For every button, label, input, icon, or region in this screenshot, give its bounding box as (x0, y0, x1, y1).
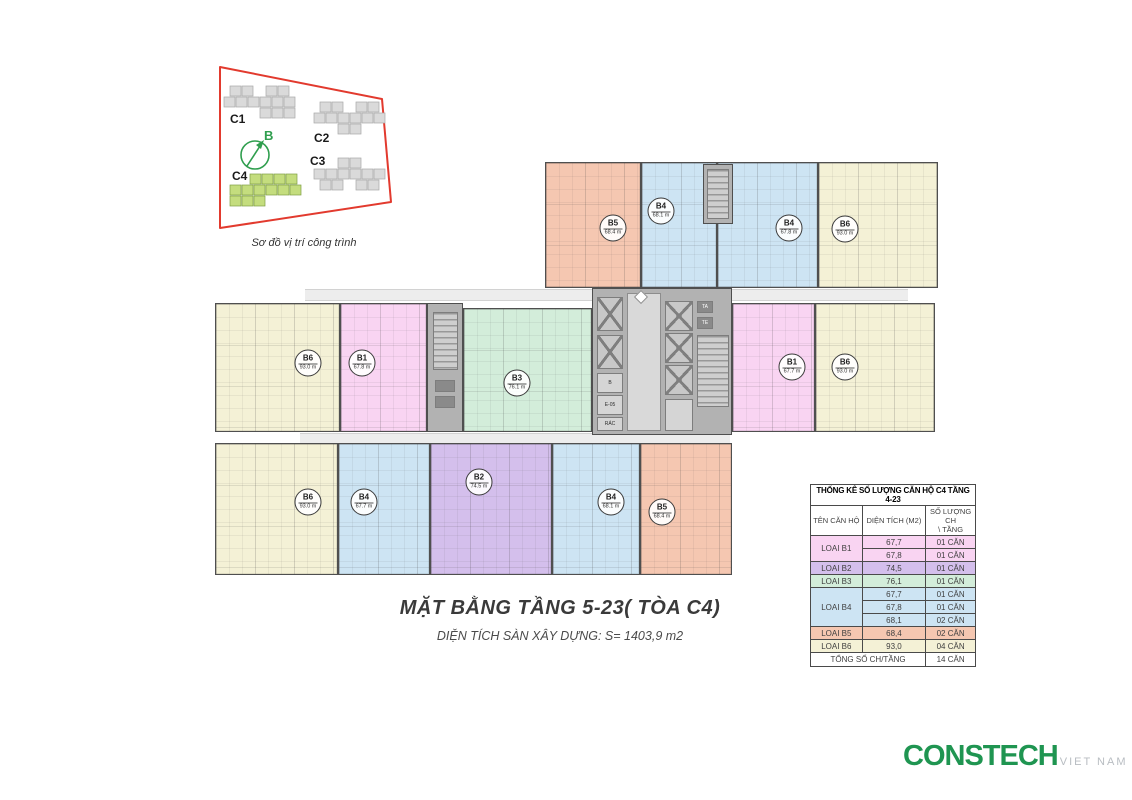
unit-code: B2 (474, 474, 484, 483)
unit-type-cell: LOAI B4 (811, 588, 863, 627)
stats-table-body: LOAI B167,701 CĂN67,801 CĂNLOAI B274,501… (811, 536, 976, 653)
stats-row: LOAI B467,701 CĂN (811, 588, 976, 601)
unit-label-b1-mid-left: B167.8 m (349, 350, 376, 377)
stats-table-title: THỐNG KÊ SỐ LƯỢNG CĂN HỘ C4 TẦNG 4-23 (811, 485, 976, 506)
apartment-stats-table: THỐNG KÊ SỐ LƯỢNG CĂN HỘ C4 TẦNG 4-23 TÊ… (810, 484, 976, 667)
stats-row: LOAI B167,701 CĂN (811, 536, 976, 549)
elevator-cell (665, 301, 693, 331)
unit-label-b6-bottom-left: B693.0 m (295, 489, 322, 516)
area-cell: 68,4 (862, 627, 926, 640)
floor-plan: B E-05 RÁC TA TE B568.4 mB468.1 mB467.8 … (0, 0, 1132, 800)
mid-wing-stairwell (427, 303, 463, 432)
service-shaft (435, 380, 455, 392)
area-cell: 68,1 (862, 614, 926, 627)
unit-label-b2-bottom: B274.5 m (466, 469, 493, 496)
unit-label-b6-mid-left: B693.0 m (295, 350, 322, 377)
area-cell: 67,7 (862, 588, 926, 601)
unit-type-cell: LOAI B3 (811, 575, 863, 588)
unit-b2-bottom (430, 443, 552, 575)
unit-label-b5-bottom: B568.4 m (649, 499, 676, 526)
count-cell: 01 CĂN (926, 562, 976, 575)
unit-label-b3-mid: B376.1 m (504, 370, 531, 397)
count-cell: 01 CĂN (926, 549, 976, 562)
unit-area: 93.0 m (299, 364, 318, 372)
unit-b3-mid (463, 308, 592, 432)
count-cell: 01 CĂN (926, 575, 976, 588)
unit-area: 68.1 m (652, 212, 671, 220)
unit-code: B4 (656, 203, 666, 212)
title-block: MẶT BẰNG TẦNG 5-23( TÒA C4) DIỆN TÍCH SÀ… (320, 597, 800, 643)
unit-area: 67.7 m (355, 503, 374, 511)
unit-area: 67.8 m (780, 229, 799, 237)
count-cell: 01 CĂN (926, 536, 976, 549)
core-room-e05: E-05 (597, 395, 623, 415)
unit-area: 67.8 m (353, 364, 372, 372)
core-shaft-ta: TA (697, 301, 713, 313)
stats-row: LOAI B693,004 CĂN (811, 640, 976, 653)
col-header-count: SỐ LƯỢNG CH \ TẦNG (926, 506, 976, 536)
unit-code: B5 (657, 504, 667, 513)
constech-logo: CONSTECH VIET NAM (903, 740, 1128, 773)
stats-row: LOAI B568,402 CĂN (811, 627, 976, 640)
unit-type-cell: LOAI B5 (811, 627, 863, 640)
unit-code: B3 (512, 375, 522, 384)
unit-code: B4 (359, 494, 369, 503)
unit-label-b4-top-right: B467.8 m (776, 215, 803, 242)
unit-code: B1 (787, 359, 797, 368)
area-cell: 67,8 (862, 601, 926, 614)
unit-code: B1 (357, 355, 367, 364)
unit-area: 93.0 m (299, 503, 318, 511)
unit-area: 68.4 m (653, 513, 672, 521)
unit-area: 68.4 m (604, 229, 623, 237)
top-wing-stair-shaft (703, 164, 733, 224)
count-cell: 02 CĂN (926, 614, 976, 627)
unit-label-b4-bottom-right: B468.1 m (598, 489, 625, 516)
unit-code: B6 (840, 359, 850, 368)
unit-code: B5 (608, 220, 618, 229)
unit-code: B6 (303, 494, 313, 503)
area-cell: 74,5 (862, 562, 926, 575)
unit-label-b6-mid-right: B693.0 m (832, 354, 859, 381)
unit-b4-bottom-right (552, 443, 640, 575)
corridor-band (305, 289, 592, 301)
service-shaft (435, 396, 455, 408)
plan-subtitle: DIỆN TÍCH SÀN XÂY DỰNG: S= 1403,9 m2 (320, 629, 800, 643)
unit-area: 68.1 m (602, 503, 621, 511)
unit-area: 93.0 m (836, 368, 855, 376)
unit-type-cell: LOAI B6 (811, 640, 863, 653)
count-cell: 04 CĂN (926, 640, 976, 653)
unit-label-b1-mid-right: B167.7 m (779, 354, 806, 381)
unit-code: B6 (840, 221, 850, 230)
area-cell: 67,8 (862, 549, 926, 562)
total-value: 14 CĂN (926, 653, 976, 667)
stats-row: LOAI B376,101 CĂN (811, 575, 976, 588)
unit-b6-bottom-left (215, 443, 338, 575)
core-shaft-te: TE (697, 317, 713, 329)
logo-suffix: VIET NAM (1060, 756, 1128, 768)
core-corridor (627, 293, 661, 431)
core-elevator-block: B E-05 RÁC TA TE (592, 288, 732, 435)
area-cell: 67,7 (862, 536, 926, 549)
col-header-name: TÊN CĂN HỘ (811, 506, 863, 536)
unit-area: 67.7 m (783, 368, 802, 376)
unit-type-cell: LOAI B1 (811, 536, 863, 562)
unit-code: B6 (303, 355, 313, 364)
area-cell: 93,0 (862, 640, 926, 653)
elevator-cell (665, 365, 693, 395)
unit-b6-mid-left (215, 303, 340, 432)
count-cell: 02 CĂN (926, 627, 976, 640)
area-cell: 76,1 (862, 575, 926, 588)
unit-area: 93.0 m (836, 230, 855, 238)
unit-code: B4 (606, 494, 616, 503)
col-header-area: DIỆN TÍCH (M2) (862, 506, 926, 536)
corridor-band (732, 289, 908, 301)
unit-label-b4-bottom-left: B467.7 m (351, 489, 378, 516)
unit-type-cell: LOAI B2 (811, 562, 863, 575)
unit-area: 74.5 m (470, 483, 489, 491)
logo-name: CONSTECH (903, 740, 1058, 773)
unit-code: B4 (784, 220, 794, 229)
unit-label-b4-top-left: B468.1 m (648, 198, 675, 225)
total-label: TỔNG SỐ CH/TẦNG (811, 653, 926, 667)
unit-label-b5-top: B568.4 m (600, 215, 627, 242)
core-room-b: B (597, 373, 623, 393)
count-cell: 01 CĂN (926, 588, 976, 601)
drawing-sheet: B C1 C2 C3 C4 Sơ đồ vị trí công trình B … (0, 0, 1132, 800)
elevator-cell (665, 333, 693, 363)
elevator-cell (597, 335, 623, 369)
count-cell: 01 CĂN (926, 601, 976, 614)
unit-area: 76.1 m (508, 384, 527, 392)
plan-title: MẶT BẰNG TẦNG 5-23( TÒA C4) (320, 597, 800, 620)
staircase (433, 312, 458, 370)
staircase (707, 169, 729, 219)
elevator-cell (597, 297, 623, 331)
core-staircase (697, 335, 729, 407)
core-room-rac: RÁC (597, 417, 623, 431)
core-room (665, 399, 693, 431)
unit-b5-top (545, 162, 641, 288)
unit-label-b6-top-right: B693.0 m (832, 216, 859, 243)
stats-row: LOAI B274,501 CĂN (811, 562, 976, 575)
